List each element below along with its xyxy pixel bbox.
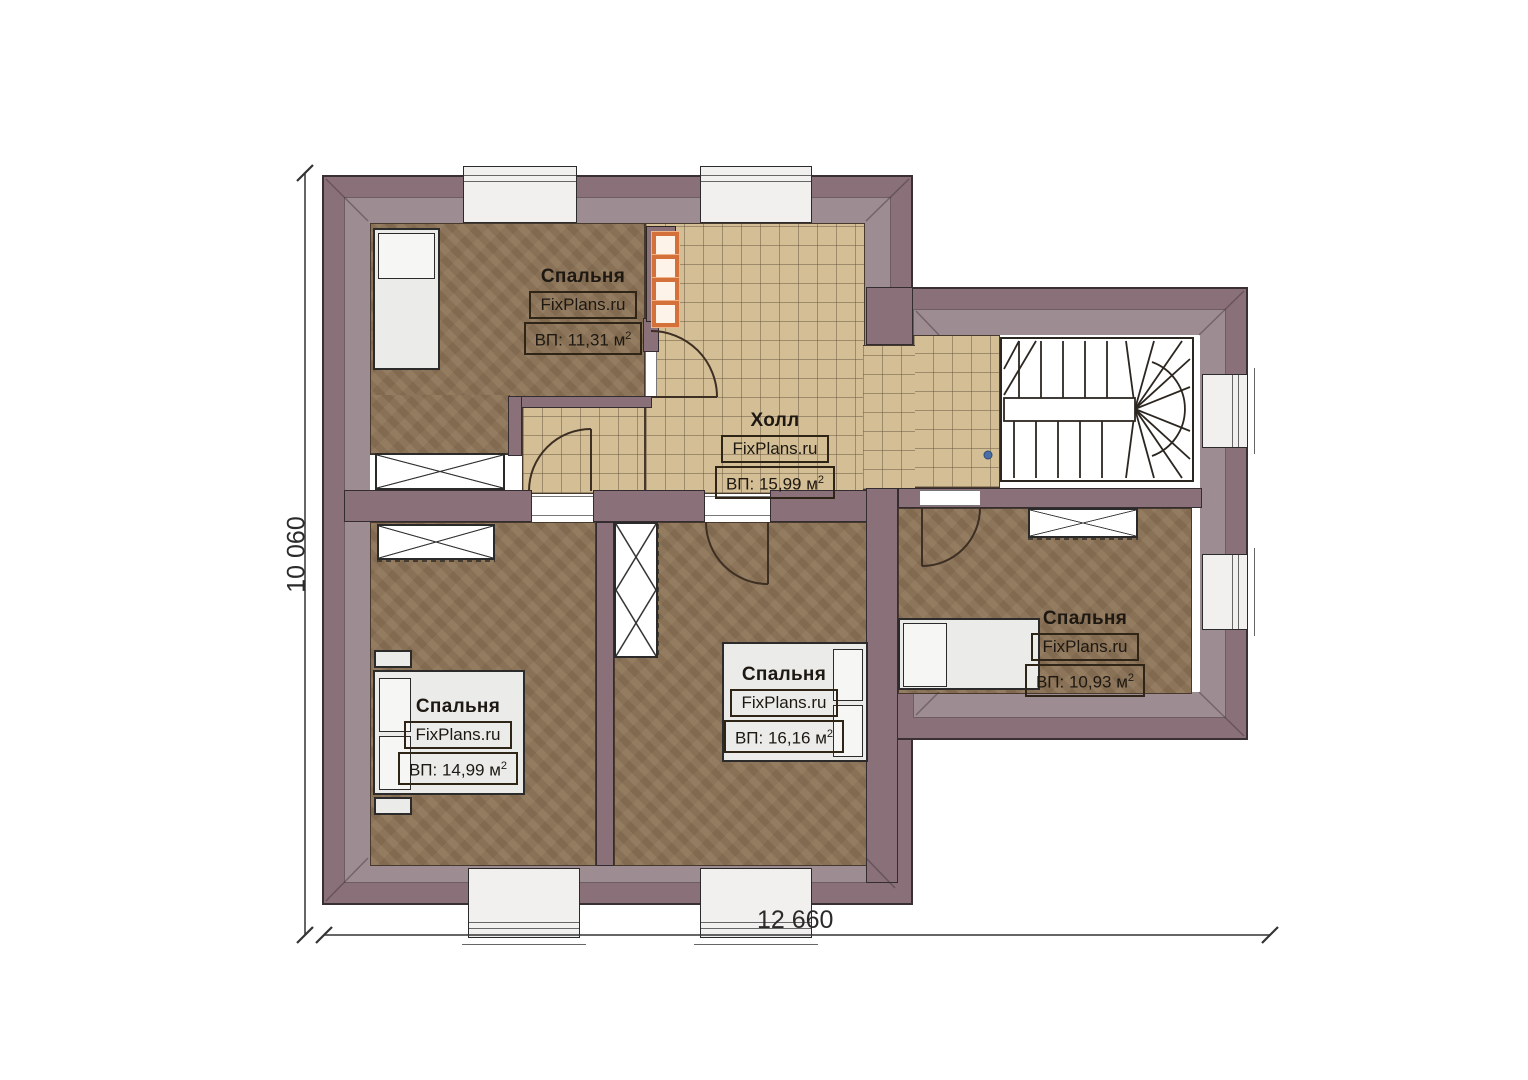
dimension-width-label: 12 660 <box>757 906 833 935</box>
room-label-bedroom-3: Спальня FixPlans.ru ВП: 16,16 м2 <box>724 664 844 753</box>
door-threshold-bedroom2 <box>532 496 593 516</box>
brand-box: FixPlans.ru <box>1031 633 1138 661</box>
roof-niche-wing <box>1028 508 1138 538</box>
window-wing-1 <box>1202 374 1248 448</box>
window-wing-1-sill <box>1254 368 1255 454</box>
room-name: Спальня <box>416 696 500 718</box>
staircase-drawing <box>1002 339 1192 480</box>
staircase <box>1000 337 1194 482</box>
nightstand-1 <box>374 650 412 668</box>
vent-shaft-x-upper <box>616 524 656 590</box>
wall-middle-left <box>344 490 532 522</box>
window-top-2 <box>700 166 812 223</box>
room-name: Холл <box>751 410 800 432</box>
pillow <box>903 623 947 687</box>
window-bottom-1 <box>468 868 580 938</box>
vent-shaft-x-lower <box>616 590 656 656</box>
room-name: Спальня <box>1043 608 1127 630</box>
area-box: ВП: 11,31 м2 <box>524 322 643 355</box>
brand-box: FixPlans.ru <box>529 291 636 319</box>
area-box: ВП: 15,99 м2 <box>715 466 835 499</box>
brand-box: FixPlans.ru <box>721 435 828 463</box>
door-threshold-bedroom3 <box>705 496 770 516</box>
window-bottom-2-sill <box>694 944 818 945</box>
bed-bedroom-4 <box>898 618 1040 690</box>
window-bottom-1-sill <box>462 944 586 945</box>
brand-box: FixPlans.ru <box>730 689 837 717</box>
wall-main-right <box>866 488 898 883</box>
brand-box: FixPlans.ru <box>404 721 511 749</box>
wall-middle-center <box>593 490 705 522</box>
vent-shaft <box>614 522 658 658</box>
nightstand-2 <box>374 797 412 815</box>
wing-landing-floor <box>913 335 1000 488</box>
door-threshold-bedroom1 <box>645 352 657 396</box>
window-top-1 <box>463 166 577 223</box>
pillow <box>378 233 435 279</box>
hall-corridor <box>863 345 915 490</box>
area-box: ВП: 14,99 м2 <box>398 752 518 785</box>
area-box: ВП: 10,93 м2 <box>1025 664 1145 697</box>
wall-main-right-stub <box>866 287 913 345</box>
door-threshold-bedroom4 <box>920 490 980 506</box>
hall-floor-ext <box>522 407 645 494</box>
floor-plan-canvas: Спальня FixPlans.ru ВП: 11,31 м2 Холл Fi… <box>0 0 1528 1080</box>
window-wing-2 <box>1202 554 1248 630</box>
area-box: ВП: 16,16 м2 <box>724 720 844 753</box>
window-wing-2-sill <box>1254 548 1255 636</box>
wall-bedroom1-step <box>508 396 522 456</box>
room-label-bedroom-2: Спальня FixPlans.ru ВП: 14,99 м2 <box>396 696 520 785</box>
wall-bedrooms-divider <box>596 522 614 866</box>
dimension-height-label: 10 060 <box>283 510 312 600</box>
room-label-bedroom-1: Спальня FixPlans.ru ВП: 11,31 м2 <box>524 266 642 355</box>
room-label-bedroom-4: Спальня FixPlans.ru ВП: 10,93 м2 <box>1030 608 1140 697</box>
flue-channel-4 <box>652 301 679 327</box>
room-label-hall: Холл FixPlans.ru ВП: 15,99 м2 <box>712 410 838 499</box>
flue-block <box>646 226 676 322</box>
bed-bedroom-1 <box>373 228 440 370</box>
wall-bedroom1-bottom <box>508 396 652 408</box>
room-name: Спальня <box>541 266 625 288</box>
bedroom-1-floor-ext <box>370 395 510 455</box>
roof-niche-left-lower <box>377 524 495 560</box>
roof-niche-left-upper <box>375 453 505 490</box>
room-name: Спальня <box>742 664 826 686</box>
